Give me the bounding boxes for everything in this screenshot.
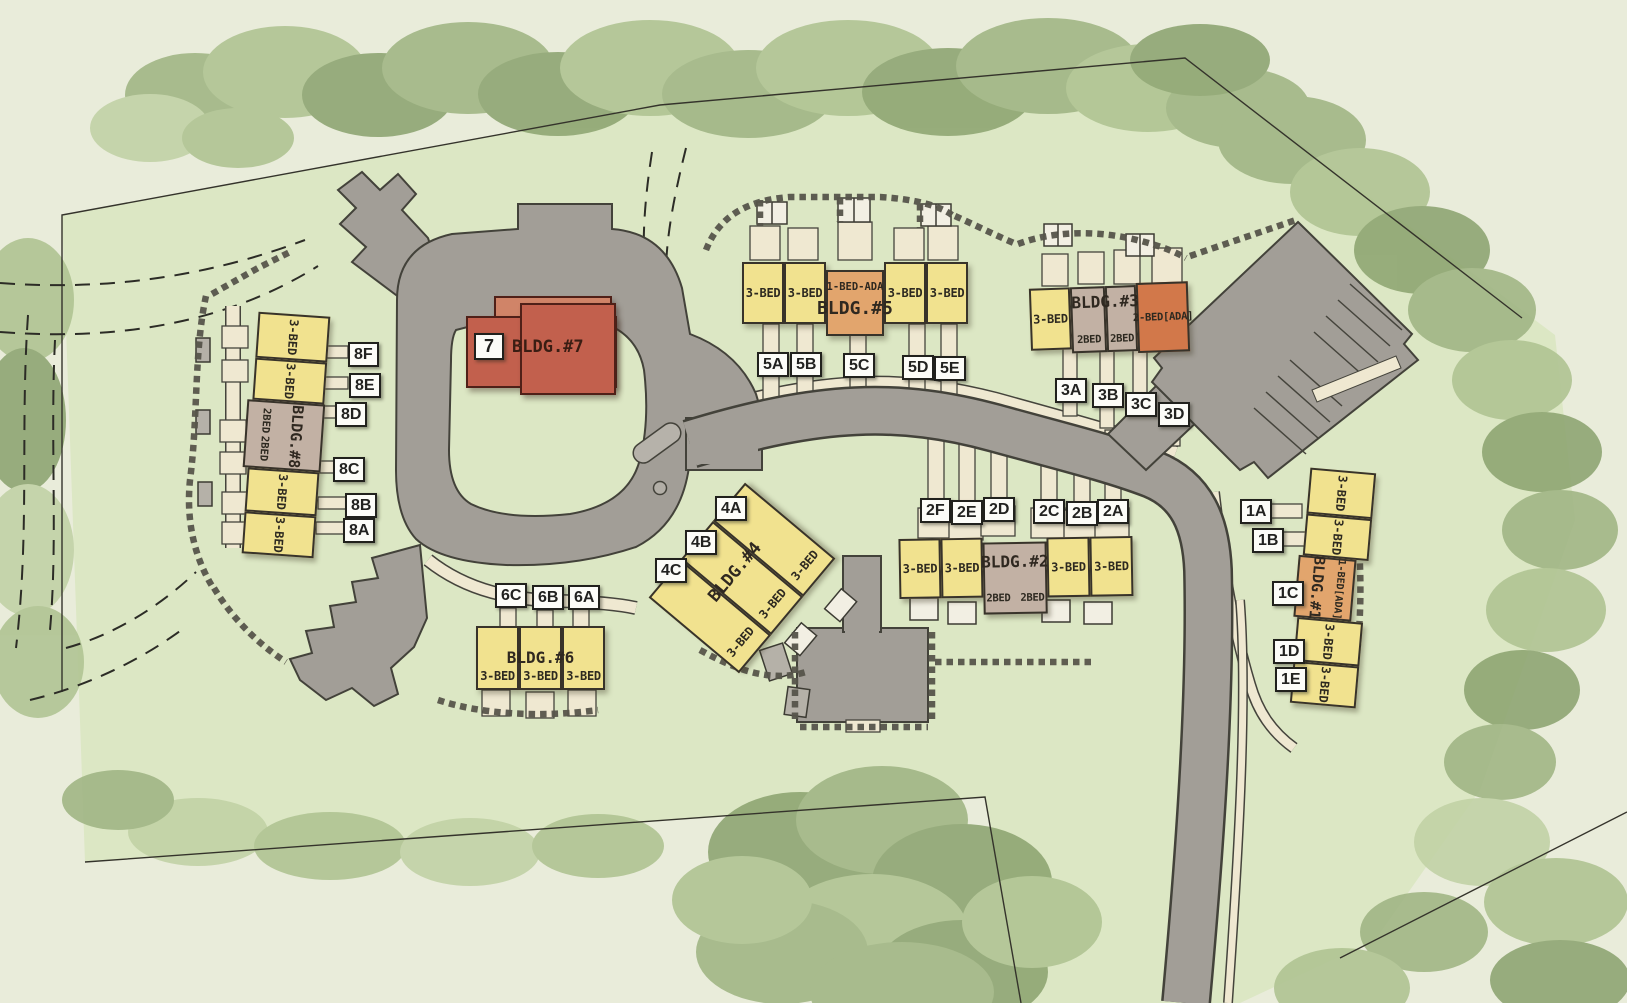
unit-chip-5d[interactable]: 5D xyxy=(902,355,934,380)
unit-cell: 3-BED xyxy=(1089,536,1133,597)
unit-bed-label: 3-BED xyxy=(1320,623,1337,660)
unit-chip-2f[interactable]: 2F xyxy=(920,498,951,523)
unit-bed-label: 3-BED xyxy=(1333,475,1350,512)
unit-bed-label: 1-BED[ADA] xyxy=(1331,559,1347,620)
unit-bed-label: 3-BED xyxy=(1026,311,1075,327)
building-1-label: BLDG.#1 xyxy=(1306,555,1329,620)
unit-chip-6c[interactable]: 6C xyxy=(495,583,527,608)
unit-chip-4b[interactable]: 4B xyxy=(685,530,717,555)
unit-cell-ada: 2-BED[ADA] xyxy=(1136,281,1190,353)
unit-chip-1d[interactable]: 1D xyxy=(1273,639,1305,664)
building-8-label: BLDG.#8 xyxy=(285,405,307,469)
building-2-label: BLDG.#2 xyxy=(981,551,1049,571)
unit-chip-2e[interactable]: 2E xyxy=(951,500,983,525)
unit-chip-2b[interactable]: 2B xyxy=(1066,501,1098,526)
building-3[interactable]: 3-BED 2BED 2BED 2-BED[ADA] BLDG.#3 xyxy=(1029,283,1190,357)
building-6-label: BLDG.#6 xyxy=(507,648,574,667)
unit-cell-ada: 1-BED-ADA BLDG.#5 xyxy=(826,270,884,336)
unit-bed-label: 2BED xyxy=(1015,591,1049,604)
unit-bed-label: 3-BED xyxy=(922,286,972,300)
unit-chip-8a[interactable]: 8A xyxy=(343,518,375,543)
unit-bed-label: 1-BED-ADA xyxy=(827,281,884,293)
unit-bed-label: 3-BED xyxy=(282,363,298,400)
unit-chip-1c[interactable]: 1C xyxy=(1272,581,1304,606)
unit-bed-label: 3-BED xyxy=(274,473,290,510)
building-7[interactable]: 7 BLDG.#7 xyxy=(450,290,625,405)
unit-cell: 3-BED xyxy=(242,511,317,558)
unit-cell: 3-BED xyxy=(940,538,983,599)
unit-bed-label: 2BED xyxy=(1102,332,1141,345)
site-plan: 3-BED 3-BED 2BED 2BED BLDG.#8 3-BED 3-BE… xyxy=(0,0,1627,1003)
unit-cell: 3-BED xyxy=(742,262,784,324)
unit-cell: 2BED 2BED BLDG.#8 xyxy=(243,399,326,472)
unit-cell: 3-BED xyxy=(252,358,327,405)
unit-chip-2a[interactable]: 2A xyxy=(1097,499,1129,524)
unit-bed-label: 2BED xyxy=(981,592,1015,605)
unit-cell: 3-BED xyxy=(245,467,320,516)
unit-bed-label: 3-BED xyxy=(1086,559,1137,574)
building-2[interactable]: 3-BED 3-BED BLDG.#2 2BED 2BED 3-BED 3-BE… xyxy=(898,526,1133,616)
site-terrain xyxy=(0,0,1627,1003)
unit-bed-label: 3-BED xyxy=(271,516,287,553)
unit-cell: 3-BED xyxy=(898,538,941,599)
unit-chip-8d[interactable]: 8D xyxy=(335,402,367,427)
unit-chip-4a[interactable]: 4A xyxy=(715,496,747,521)
road-manhole xyxy=(654,482,667,495)
unit-chip-6b[interactable]: 6B xyxy=(532,585,564,610)
court-pad xyxy=(797,628,928,722)
unit-chip-8b[interactable]: 8B xyxy=(345,493,377,518)
unit-chip-2c[interactable]: 2C xyxy=(1033,499,1065,524)
unit-bed-label: 2-BED[ADA] xyxy=(1133,310,1193,324)
unit-chip-4c[interactable]: 4C xyxy=(655,558,687,583)
building-5[interactable]: 3-BED 3-BED 1-BED-ADA BLDG.#5 3-BED 3-BE… xyxy=(742,262,968,336)
unit-bed-label: 3-BED xyxy=(937,561,987,576)
unit-chip-3d[interactable]: 3D xyxy=(1158,402,1190,427)
unit-chip-8f[interactable]: 8F xyxy=(348,342,379,367)
unit-cell: 3-BED xyxy=(255,312,330,363)
unit-bed-label: 3-BED xyxy=(558,669,609,683)
building-7-label: BLDG.#7 xyxy=(512,337,584,357)
unit-cell: 3-BED xyxy=(1046,537,1090,598)
unit-chip-5b[interactable]: 5B xyxy=(790,352,822,377)
unit-cell: 3-BED xyxy=(926,262,968,324)
unit-cell: BLDG.#2 2BED 2BED xyxy=(982,541,1047,614)
unit-bed-label: 2BED xyxy=(259,407,273,433)
unit-chip-5c[interactable]: 5C xyxy=(843,353,875,378)
unit-bed-label: 3-BED xyxy=(1329,519,1346,556)
unit-chip-1a[interactable]: 1A xyxy=(1240,499,1272,524)
building-6[interactable]: 3-BED 3-BED 3-BED BLDG.#6 xyxy=(476,626,605,690)
unit-chip-1e[interactable]: 1E xyxy=(1275,667,1307,692)
unit-chip-5e[interactable]: 5E xyxy=(934,356,966,381)
unit-chip-1b[interactable]: 1B xyxy=(1252,528,1284,553)
unit-cell: 3-BED xyxy=(1306,468,1376,520)
unit-bed-label: 3-BED xyxy=(1316,666,1333,703)
building-7-badge[interactable]: 7 xyxy=(474,333,504,360)
unit-bed-label: 3-BED xyxy=(285,319,301,356)
building-5-label: BLDG.#5 xyxy=(817,298,893,319)
unit-chip-8e[interactable]: 8E xyxy=(349,373,381,398)
unit-chip-3a[interactable]: 3A xyxy=(1055,378,1087,403)
unit-chip-3b[interactable]: 3B xyxy=(1092,383,1124,408)
unit-chip-6a[interactable]: 6A xyxy=(568,585,600,610)
unit-cell: 3-BED xyxy=(1303,513,1372,561)
building-3-label: BLDG.#3 xyxy=(1071,291,1139,312)
unit-chip-2d[interactable]: 2D xyxy=(983,497,1015,522)
unit-chip-3c[interactable]: 3C xyxy=(1125,392,1157,417)
unit-bed-label: 2BED xyxy=(257,436,271,462)
unit-chip-5a[interactable]: 5A xyxy=(757,352,789,377)
unit-cell: 3-BED xyxy=(1029,287,1072,350)
unit-chip-8c[interactable]: 8C xyxy=(333,457,365,482)
